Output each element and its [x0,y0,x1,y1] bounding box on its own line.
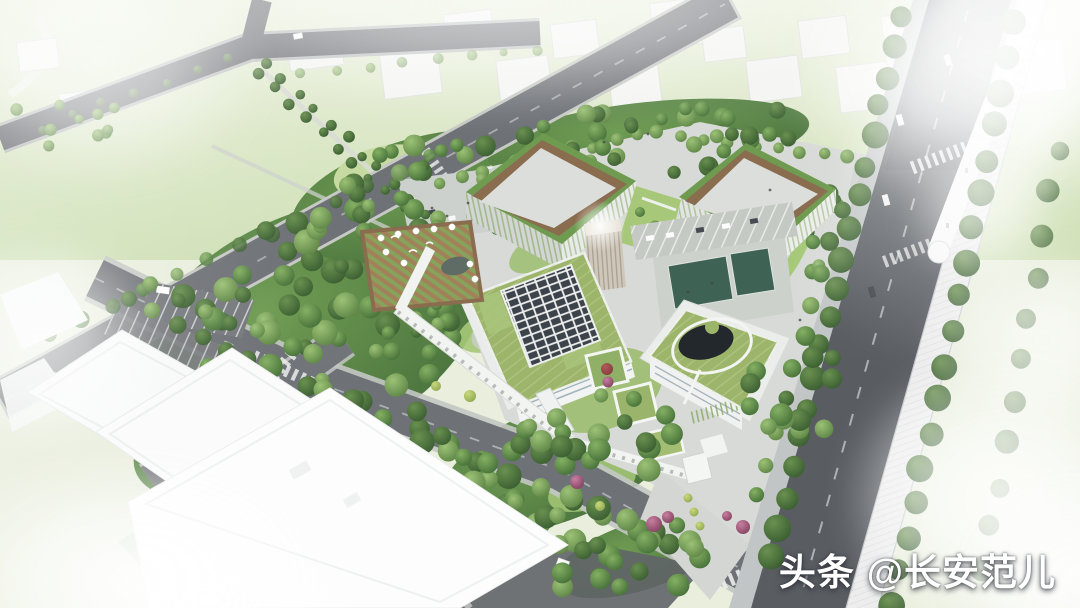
tree [764,515,791,542]
tree [552,562,573,583]
tree [920,423,944,447]
tree [369,344,383,358]
red-tree [601,363,613,375]
tree [589,537,606,554]
tree [435,144,448,157]
tree [456,170,469,183]
tree [855,157,876,178]
tree [883,34,907,58]
tree [862,122,889,149]
tree [467,50,478,61]
tree [383,343,400,360]
tree [275,73,286,84]
tree [741,397,759,415]
tree [953,250,980,277]
tree [54,100,65,111]
tree [975,150,998,173]
tree [607,152,621,166]
tree [394,191,410,207]
tree [986,80,1014,108]
tree [815,420,834,439]
tree [617,414,633,430]
tree [570,475,584,489]
tree [796,326,816,346]
tree [10,103,23,116]
tree [1011,349,1031,369]
tree [274,265,295,286]
tree [477,453,498,474]
tree [163,79,172,88]
tree [649,125,663,139]
tree [749,487,764,502]
tree [475,135,496,156]
tree [200,252,214,266]
tree [776,488,798,510]
watermark-brand: 头条 [779,552,855,593]
tree [876,67,899,90]
tree [346,157,358,169]
tree [382,326,395,339]
tree [96,98,105,107]
tree [948,284,970,306]
tree [656,113,668,125]
tree [594,388,608,402]
tree [806,235,820,249]
tree [828,247,854,273]
tree [793,146,806,159]
tree [333,292,358,317]
tree [978,515,999,536]
tree [257,221,276,240]
tree [773,143,784,154]
tree [223,53,232,62]
tree [710,129,724,143]
tree [577,105,596,124]
tree [172,293,186,307]
tree [308,104,317,113]
tree [1000,9,1026,35]
tree [408,162,427,181]
tree [990,479,1009,498]
tree [606,554,623,571]
tree [391,164,408,181]
tree [603,377,614,388]
tree [407,401,427,421]
tree [867,94,888,115]
tree [550,435,572,457]
tree [298,304,322,328]
tree [822,368,842,388]
tree [636,432,657,453]
tree [1016,309,1036,329]
tree [253,68,265,80]
tree [339,177,356,194]
tree [890,6,911,27]
tree [326,120,337,131]
tree [736,520,750,534]
tree [300,111,312,123]
aerial-render-scene: 头条@长安范儿 [0,0,1080,608]
tree [422,345,439,362]
tree [662,511,674,523]
tree [433,53,444,64]
tree [667,574,690,597]
tree [675,130,687,142]
tree [261,58,272,69]
tree [758,458,773,473]
tree [193,65,202,74]
tree [496,463,522,489]
tree [840,150,854,164]
tree [837,216,862,241]
tree [820,232,839,251]
site-plan-svg [0,0,1080,608]
tree [343,131,355,143]
tree [834,202,851,219]
tree [549,507,565,523]
tree [296,90,306,100]
tree [690,508,699,517]
tree [760,418,776,434]
tree [740,373,760,393]
tree [636,531,658,553]
tree [1004,391,1026,413]
tree [684,494,693,503]
tree [1051,142,1070,161]
tree [198,304,213,319]
tree [232,237,247,252]
tree [630,562,648,580]
tree [283,99,295,111]
tree [769,102,786,119]
tree [295,68,305,78]
tree [968,179,995,206]
tree [332,66,342,76]
tree [959,215,983,239]
tree [143,276,158,291]
tree [924,385,951,412]
tree [397,57,408,68]
tree [222,316,237,331]
tree [595,501,605,511]
tree [825,277,849,301]
tree [423,149,435,161]
tree [904,491,928,515]
tree [532,479,550,497]
watermark: 头条@长安范儿 [779,542,1056,596]
tree [637,458,661,482]
tree [696,522,705,531]
tree [626,391,642,407]
tree [532,46,542,56]
tree [334,259,349,274]
tree [450,139,463,152]
tree [279,294,300,315]
tree [590,569,611,590]
tree [464,390,476,402]
tree [848,183,871,206]
sun-glint [574,200,626,252]
tree [611,133,624,146]
tree [233,265,252,284]
tree [819,148,830,159]
tree [722,511,732,521]
tree [385,373,409,397]
tree [357,152,366,161]
tree [522,419,538,435]
tree [982,111,1007,136]
tree [144,302,160,318]
tree [942,320,964,342]
tree [1030,225,1053,248]
tree [293,277,313,297]
tree [121,291,137,307]
tree [171,268,184,281]
tree [103,125,114,136]
tree [611,578,628,595]
tree [195,329,212,346]
tree [362,199,375,212]
tree [129,88,139,98]
tree [75,115,84,124]
tree [762,127,777,142]
tree [656,405,675,424]
tree [381,185,391,195]
tree [995,430,1019,454]
tree [1036,179,1060,203]
tree [366,63,376,73]
tree [740,126,759,145]
tree [372,147,388,163]
tree [725,127,739,141]
tree [431,381,441,391]
tree [668,166,681,179]
tree [1028,268,1049,289]
tree [169,316,187,334]
tree [433,427,451,445]
tree [92,129,104,141]
tree [820,306,841,327]
tree [825,350,841,366]
watermark-handle: @长安范儿 [867,552,1056,593]
tree [717,144,732,159]
tree [646,516,662,532]
tree [783,456,805,478]
tree [686,136,702,152]
tree [43,140,54,151]
road-background-north [250,0,262,47]
tree [455,449,472,466]
tree [92,109,103,120]
tree [45,124,57,136]
tree [303,344,323,364]
tree [800,365,825,390]
tree [588,438,611,461]
tree [105,299,120,314]
tree [235,287,251,303]
tree [625,120,639,134]
tree [802,346,824,368]
tree [802,297,819,314]
tree [616,508,638,530]
tree [333,144,344,155]
tree [720,110,736,126]
tree [695,101,710,116]
tree [214,277,239,302]
tree [537,120,551,134]
tree [310,207,332,229]
tree [500,48,508,56]
tree [783,359,801,377]
tree [812,265,830,283]
tree [995,45,1019,69]
tree [330,196,343,209]
tree [109,102,120,113]
tree [434,178,445,189]
tree [661,423,683,445]
tree [679,102,692,115]
tree [701,157,715,171]
tree [284,337,303,356]
tree [906,455,933,482]
tree [931,354,957,380]
tree [685,538,704,557]
tree [780,131,796,147]
tree [403,135,425,157]
tree [250,323,265,338]
